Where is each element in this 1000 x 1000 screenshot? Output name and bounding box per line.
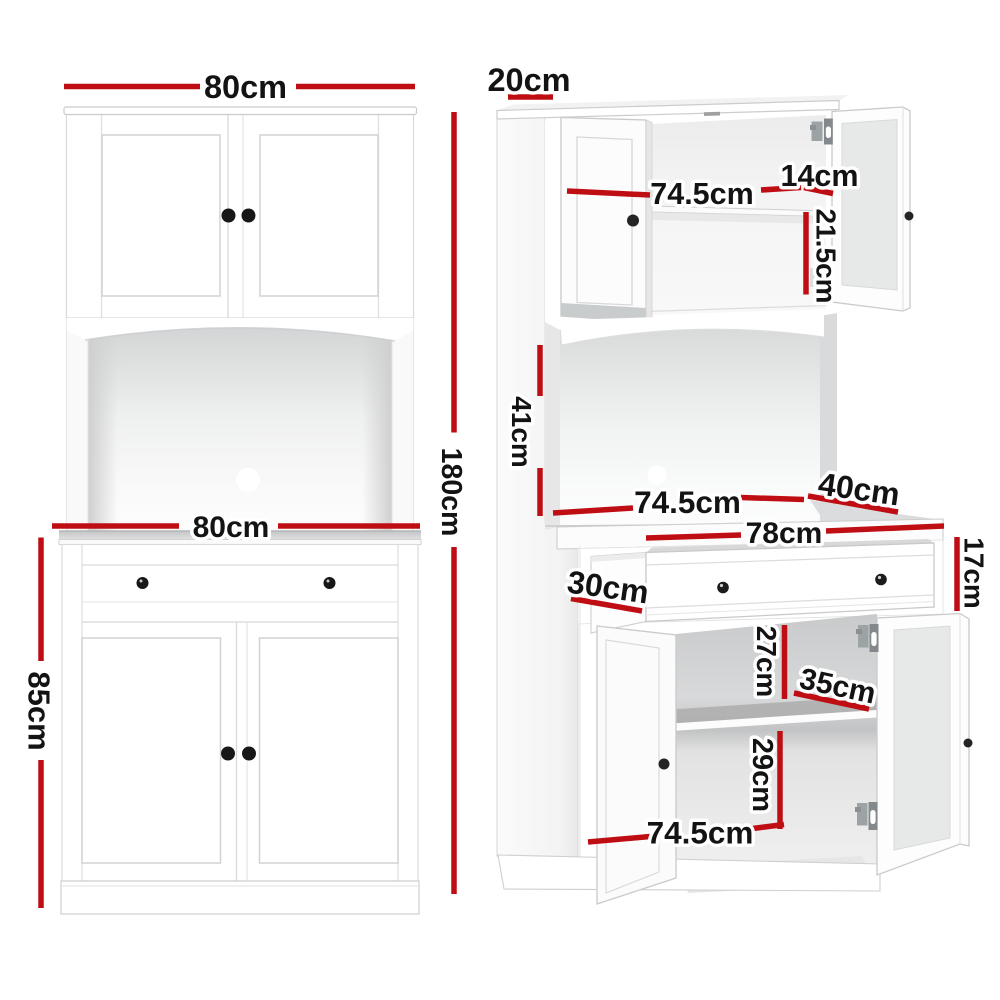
svg-text:41cm: 41cm xyxy=(506,396,537,468)
svg-text:80cm: 80cm xyxy=(204,69,287,105)
svg-text:80cm: 80cm xyxy=(193,511,270,544)
svg-text:17cm: 17cm xyxy=(959,537,990,609)
svg-text:21.5cm: 21.5cm xyxy=(811,209,842,304)
svg-text:14cm: 14cm xyxy=(780,159,858,193)
svg-text:20cm: 20cm xyxy=(487,62,570,98)
svg-text:74.5cm: 74.5cm xyxy=(647,815,754,851)
svg-text:74.5cm: 74.5cm xyxy=(634,484,741,520)
svg-text:74.5cm: 74.5cm xyxy=(650,177,753,211)
svg-text:27cm: 27cm xyxy=(751,626,782,698)
svg-text:85cm: 85cm xyxy=(22,671,57,750)
svg-text:78cm: 78cm xyxy=(746,517,823,550)
svg-text:29cm: 29cm xyxy=(746,738,778,812)
svg-text:180cm: 180cm xyxy=(435,448,467,537)
